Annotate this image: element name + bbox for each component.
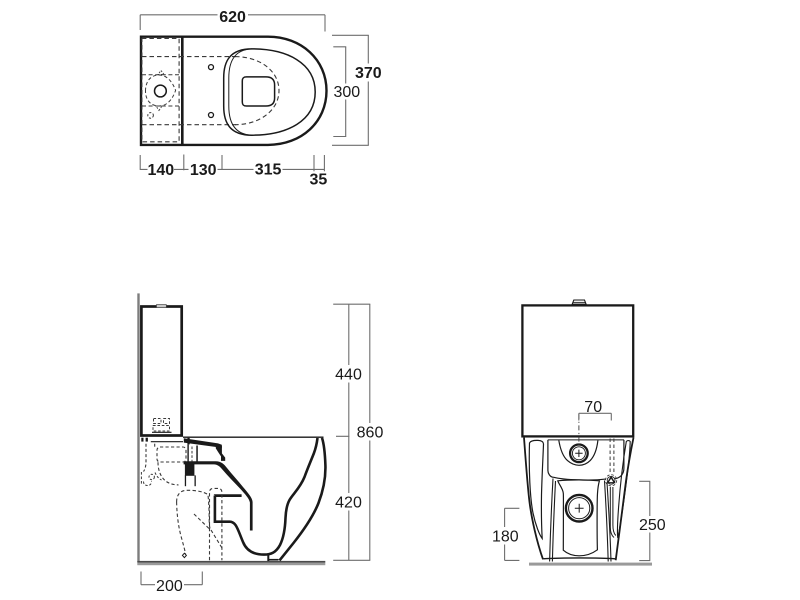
svg-text:370: 370 bbox=[355, 65, 382, 82]
svg-text:250: 250 bbox=[639, 517, 666, 534]
svg-text:300: 300 bbox=[333, 84, 360, 101]
svg-text:420: 420 bbox=[335, 495, 362, 512]
svg-text:315: 315 bbox=[255, 161, 282, 178]
svg-text:35: 35 bbox=[310, 171, 328, 188]
svg-text:130: 130 bbox=[190, 162, 217, 179]
svg-text:140: 140 bbox=[147, 162, 174, 179]
svg-text:200: 200 bbox=[156, 578, 183, 595]
svg-text:180: 180 bbox=[492, 528, 519, 545]
svg-text:620: 620 bbox=[219, 9, 246, 26]
svg-text:70: 70 bbox=[584, 399, 602, 416]
svg-text:860: 860 bbox=[357, 425, 384, 442]
svg-text:440: 440 bbox=[335, 367, 362, 384]
